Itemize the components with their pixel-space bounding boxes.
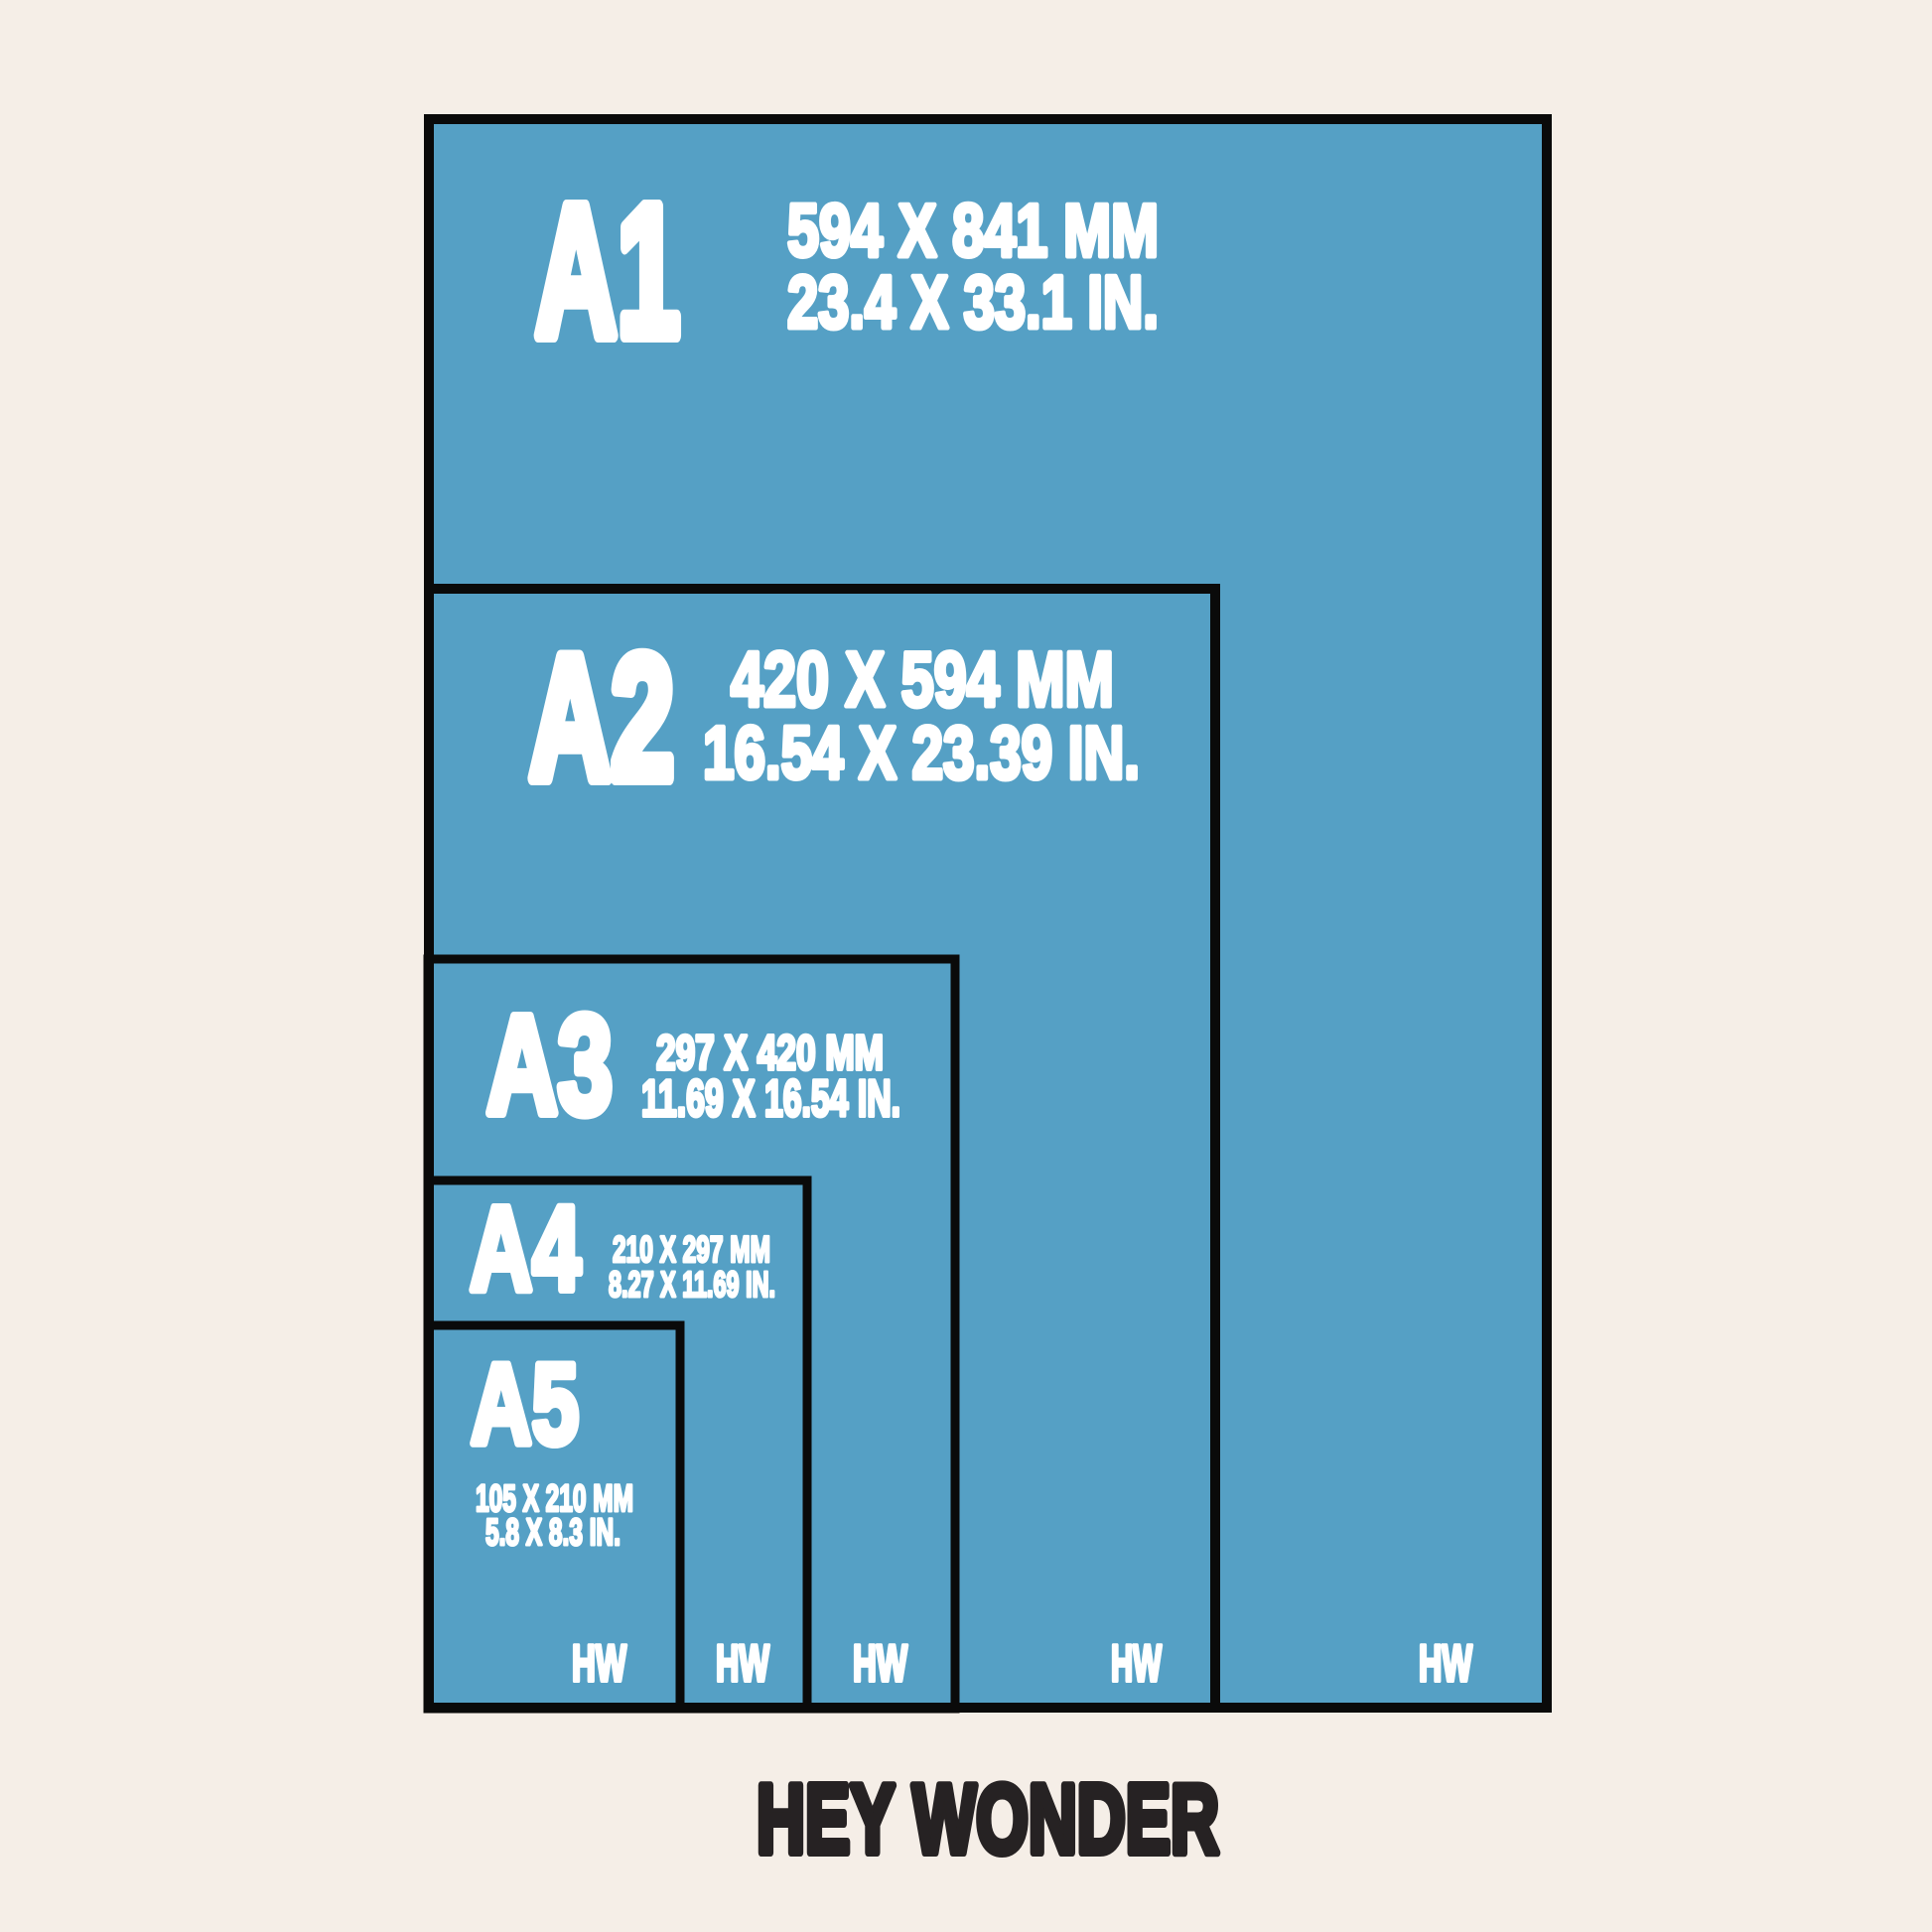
svg-text:420 X 594 MM: 420 X 594 MM	[731, 635, 1114, 723]
svg-text:5.8 X 8.3 IN.: 5.8 X 8.3 IN.	[485, 1512, 621, 1554]
svg-text:23.4 X 33.1 IN.: 23.4 X 33.1 IN.	[787, 260, 1159, 344]
svg-text:A2: A2	[529, 619, 674, 816]
svg-text:8.27 X 11.69 IN.: 8.27 X 11.69 IN.	[609, 1264, 775, 1305]
svg-text:HEY WONDER: HEY WONDER	[757, 1764, 1219, 1873]
svg-text:11.69 X 16.54 IN.: 11.69 X 16.54 IN.	[641, 1070, 900, 1128]
svg-text:HW: HW	[1111, 1635, 1163, 1693]
svg-text:A3: A3	[486, 986, 613, 1143]
svg-text:HW: HW	[853, 1635, 908, 1693]
svg-text:HW: HW	[716, 1635, 770, 1693]
svg-text:A4: A4	[470, 1180, 581, 1315]
svg-text:16.54 X 23.39 IN.: 16.54 X 23.39 IN.	[703, 711, 1140, 794]
svg-text:HW: HW	[572, 1635, 627, 1693]
svg-text:HW: HW	[1419, 1635, 1473, 1693]
svg-text:A5: A5	[471, 1341, 579, 1468]
svg-text:A1: A1	[535, 167, 680, 376]
